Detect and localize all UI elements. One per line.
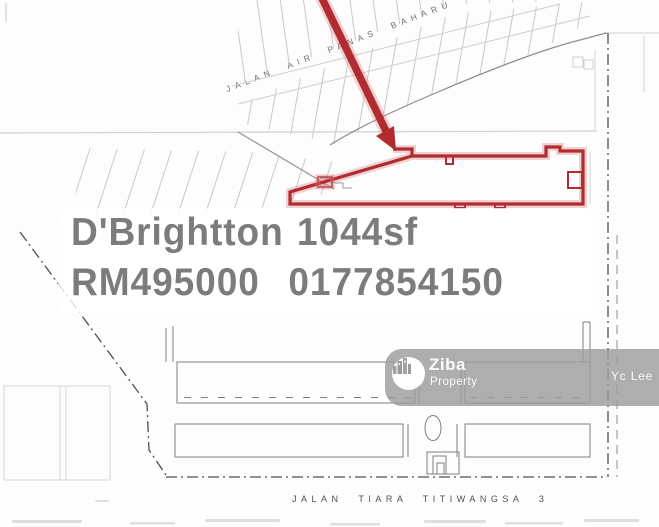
listing-phone: 0177854150 — [288, 261, 504, 304]
listing-contact-line: RM4950000177854150 — [71, 261, 504, 305]
property-site-plan: JALAN AIR PANAS BAHARU JALAN TIARA TITIW… — [0, 0, 659, 527]
highlighted-lot-outline — [290, 147, 583, 208]
watermark-logo — [392, 357, 425, 390]
scan-smudges — [12, 500, 639, 526]
watermark-agent-name: Yc Lee — [611, 369, 653, 383]
watermark-bar: Ziba Property Yc Lee — [385, 349, 659, 406]
listing-price: RM495000 — [71, 261, 260, 304]
listing-name: D'Brightton — [71, 211, 284, 254]
listing-title-line: D'Brightton1044sf — [71, 211, 418, 255]
listing-size: 1044sf — [297, 211, 418, 254]
watermark-brand: Ziba — [429, 355, 466, 375]
watermark-brand-sub: Property — [430, 376, 477, 388]
listing-info-overlay: D'Brightton1044sf RM4950000177854150 — [58, 208, 593, 314]
buildings-icon — [392, 357, 412, 375]
